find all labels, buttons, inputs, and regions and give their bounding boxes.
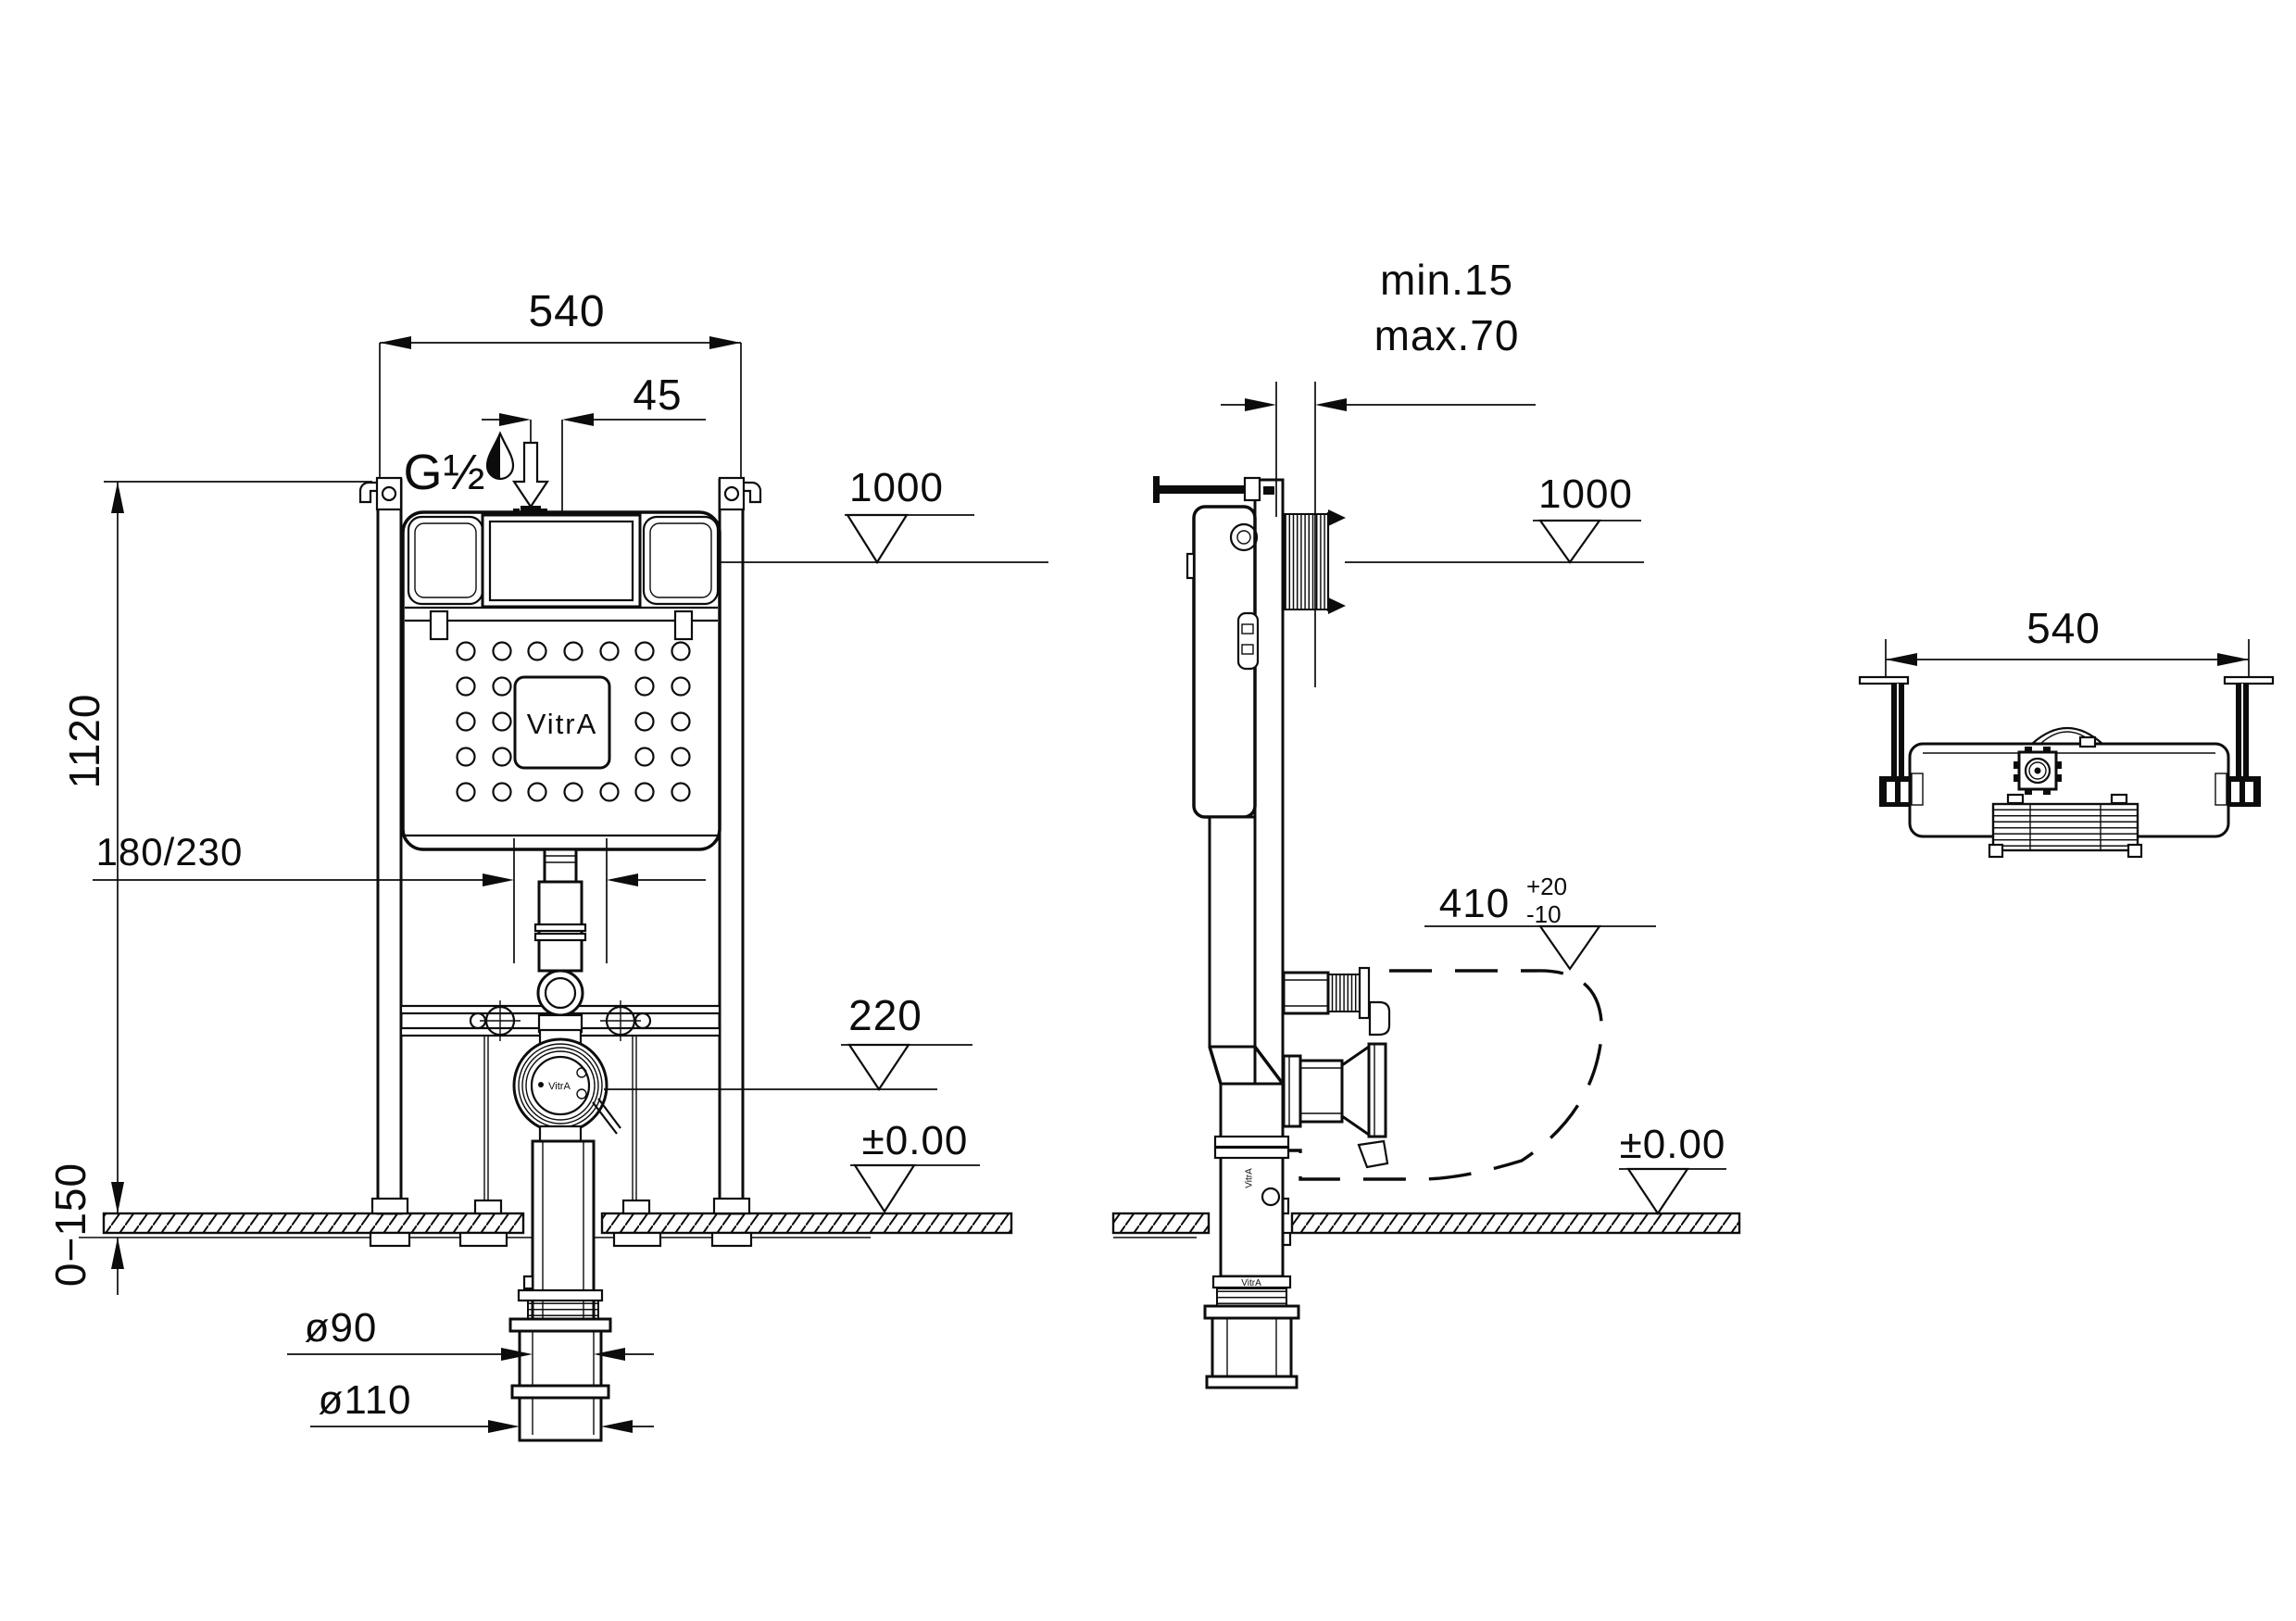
level-410-label: 410: [1439, 881, 1510, 926]
anchor-clamp: [1245, 478, 1260, 500]
supply-inlet-fitting: [541, 509, 547, 513]
level-triangle-icon: [855, 1165, 914, 1212]
level-1000-side: 1000: [1345, 471, 1644, 562]
frame-foot: [372, 1199, 408, 1213]
level-220-label: 220: [848, 991, 922, 1039]
level-triangle-icon: [849, 1045, 909, 1089]
level-triangle-icon: [1628, 1169, 1687, 1213]
sleeve-end-flare: [1328, 597, 1346, 614]
supply-arrow-icon: [514, 443, 547, 507]
foot-pad: [712, 1233, 751, 1246]
technical-drawing-canvas: VitrA VitrA: [0, 0, 2296, 1621]
rail-end-plate: [1860, 677, 1908, 684]
frame-rail-left: [378, 480, 401, 1213]
pipe-thread: [1217, 1288, 1286, 1306]
pipe-logo: VitrA: [1241, 1278, 1261, 1288]
level-floor-side: ±0.00: [1619, 1122, 1726, 1213]
supply-thread-label: G½: [403, 445, 485, 500]
level-1000-front: 1000: [720, 465, 1048, 562]
anchor-rod-plate: [1153, 476, 1160, 503]
front-drain-pipe: [510, 1141, 610, 1440]
pan-fittings: [1284, 968, 1389, 1167]
corrugated-block-plan: [1989, 804, 2141, 857]
rail-end-plate: [2225, 677, 2273, 684]
level-floor-side-label: ±0.00: [1620, 1122, 1726, 1167]
flush-outlet-corrugation: [1328, 974, 1360, 1012]
dim-wall-max-label: max.70: [1374, 311, 1520, 359]
sleeve-corrugation: [1285, 514, 1328, 609]
frame-foot: [714, 1199, 749, 1213]
drain-outlet-body: [1300, 1061, 1342, 1122]
level-floor-front: ±0.00: [850, 1118, 980, 1212]
dim-arrow: [499, 413, 531, 426]
side-view: VitrA VitrA min: [1113, 256, 1739, 1388]
tank-plan-tab: [2008, 795, 2023, 803]
socket-rim: [512, 1386, 609, 1398]
dim-540-front-label: 540: [528, 287, 605, 336]
pan-bracket-wedge: [1359, 1141, 1387, 1167]
frame-foot: [475, 1200, 501, 1213]
foot-pad: [614, 1233, 660, 1246]
dim-arrow: [111, 482, 124, 513]
drain-outlet-flange: [1284, 1056, 1300, 1126]
inlet-port: [1231, 524, 1257, 550]
cistern-tank: VitrA: [403, 506, 720, 849]
pipe-thread: [528, 1301, 598, 1319]
dim-arrow: [111, 1182, 124, 1213]
level-triangle-icon: [847, 515, 907, 562]
top-view: 540: [1860, 604, 2273, 857]
inlet-port-inner: [1237, 531, 1250, 544]
dim-arrow: [2217, 653, 2249, 666]
dim-45: 45: [482, 371, 706, 512]
tank-cap-left-inner: [415, 523, 476, 597]
dim-arrow: [488, 1420, 520, 1433]
flush-pipe-neck: [545, 849, 576, 882]
drain-outlet-cone: [1342, 1047, 1369, 1135]
supply-inlet-fitting: [513, 509, 520, 513]
pipe-coupling: [519, 1290, 602, 1301]
level-410-tol-plus: +20: [1526, 873, 1567, 900]
dim-arrow: [709, 336, 741, 349]
pan-hanger-cap: [1370, 1002, 1389, 1035]
dim-wall-min-label: min.15: [1380, 256, 1513, 304]
tank-clip: [675, 611, 692, 639]
dim-0-150-label: 0−150: [46, 1162, 94, 1287]
sleeve-end-flare: [1328, 509, 1346, 526]
level-410-tol-minus: -10: [1526, 900, 1562, 928]
flush-pipe-assembly: VitrA: [514, 849, 621, 1141]
socket-lip: [510, 1319, 610, 1331]
level-1000-side-label: 1000: [1538, 471, 1633, 517]
tank-logo: VitrA: [527, 708, 598, 740]
tank-cap-right-inner: [650, 523, 711, 597]
dim-arrow: [1315, 398, 1347, 411]
front-view: VitrA VitrA: [46, 287, 1048, 1440]
floor-slab-hatch: [104, 1213, 523, 1233]
wall-bracket-right: [720, 478, 744, 509]
foot-pad: [370, 1233, 409, 1246]
level-1000-front-label: 1000: [849, 465, 944, 510]
dim-arrow: [562, 413, 594, 426]
pipe-logo-vertical: VitrA: [1245, 1168, 1255, 1188]
tank-cap-right: [644, 517, 718, 604]
side-floor: [1113, 1213, 1739, 1238]
level-floor-front-label: ±0.00: [862, 1118, 969, 1163]
dim-arrow: [601, 1420, 633, 1433]
tank-back-boss: [1187, 554, 1194, 578]
floor-slab-hatch: [602, 1213, 1011, 1233]
arc-clip: [2080, 737, 2095, 747]
level-triangle-icon: [1540, 521, 1600, 562]
dim-1120-label: 1120: [60, 694, 108, 789]
pipe-coupling-band: [535, 924, 585, 931]
pipe-coupling-band: [1215, 1148, 1288, 1158]
pipe-clip: [524, 1276, 533, 1288]
drain-outlet-disc: [1369, 1044, 1386, 1137]
flange-bottom-tab: [540, 1126, 581, 1141]
tank-plan: [1910, 728, 2228, 857]
dim-o110-label: ø110: [318, 1377, 411, 1423]
dim-180-230-label: 180/230: [96, 830, 244, 873]
drain-flange: VitrA: [514, 1039, 621, 1134]
foot-pad: [460, 1233, 507, 1246]
level-triangle-icon: [1540, 926, 1600, 969]
block-foot: [1989, 845, 2002, 857]
dim-arrow: [1245, 398, 1276, 411]
dim-arrow: [1886, 653, 1917, 666]
access-window: [483, 515, 640, 607]
floor-slab-hatch: [1292, 1213, 1739, 1233]
level-410: 410 +20 -10: [1424, 873, 1656, 969]
dim-45-label: 45: [633, 371, 682, 419]
flush-outlet-flange: [1360, 968, 1369, 1018]
pipe-coupling-band: [535, 934, 585, 940]
frame-rail-right: [720, 480, 743, 1213]
flush-mechanism: [1238, 613, 1258, 669]
block-foot: [2128, 845, 2141, 857]
flush-outlet: [1284, 973, 1328, 1013]
water-drop-icon: [487, 434, 513, 479]
dim-540-top: 540: [1886, 604, 2249, 683]
socket-rim: [1207, 1376, 1297, 1388]
frame-foot: [623, 1200, 649, 1213]
side-tank-profile: [1187, 507, 1258, 817]
dim-o90-label: ø90: [305, 1305, 378, 1351]
anchor-rod: [1160, 485, 1255, 494]
wall-bracket-left: [377, 478, 401, 509]
floor-slab-hatch: [1113, 1213, 1209, 1233]
dim-arrow: [380, 336, 411, 349]
tank-cap-left: [408, 517, 483, 604]
socket-lip: [1205, 1306, 1299, 1318]
tank-clip: [431, 611, 447, 639]
pipe-coupling-band: [1215, 1137, 1288, 1147]
flush-valve-plan: [2014, 747, 2062, 795]
dim-arrow: [607, 873, 638, 886]
flange-logo: VitrA: [548, 1081, 571, 1092]
supply-callout: G½: [403, 434, 547, 507]
rail-slot: [1263, 486, 1274, 495]
dim-arrow: [483, 873, 514, 886]
tank-plan-tab: [2112, 795, 2127, 803]
tank-outlet-pipe: [1210, 817, 1255, 1047]
drawing-sheet: VitrA VitrA: [0, 0, 2296, 1621]
dim-540-top-label: 540: [2026, 604, 2101, 652]
